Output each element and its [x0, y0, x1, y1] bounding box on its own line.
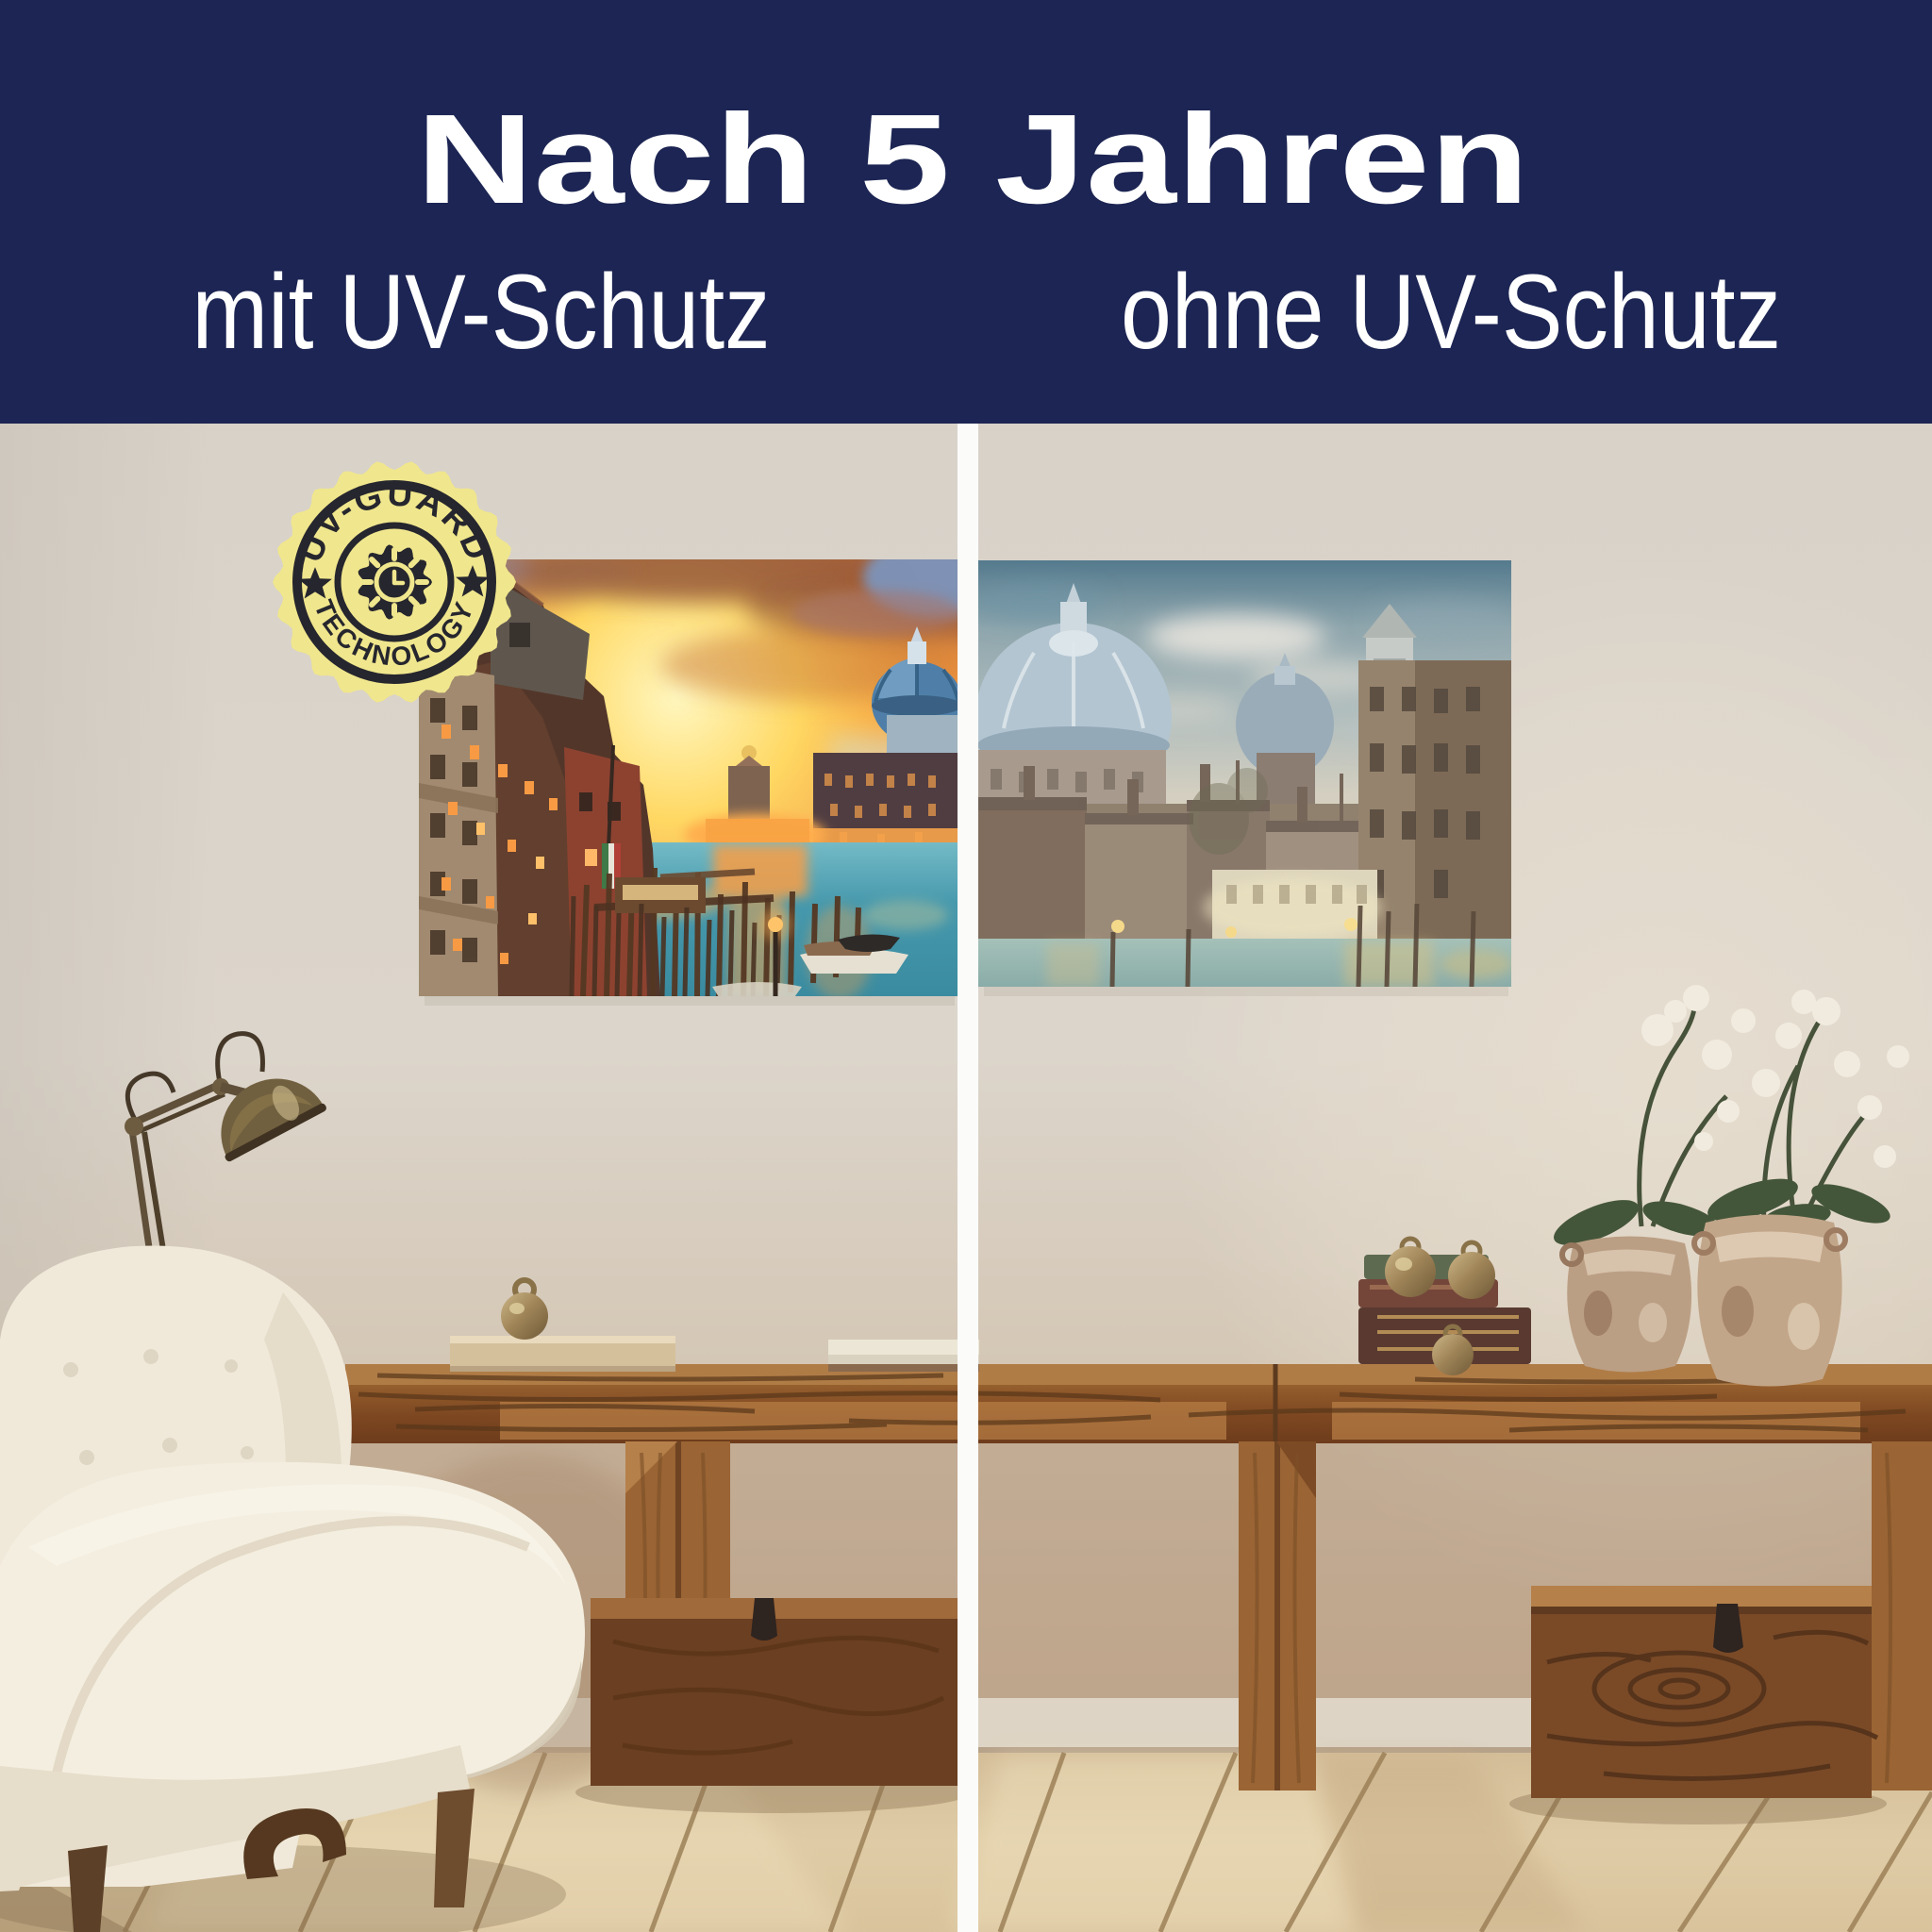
svg-text:ohne UV-Schutz: ohne UV-Schutz	[1121, 253, 1781, 371]
svg-text:mit UV-Schutz: mit UV-Schutz	[192, 253, 771, 371]
svg-text:Nach 5 Jahren: Nach 5 Jahren	[416, 88, 1529, 230]
